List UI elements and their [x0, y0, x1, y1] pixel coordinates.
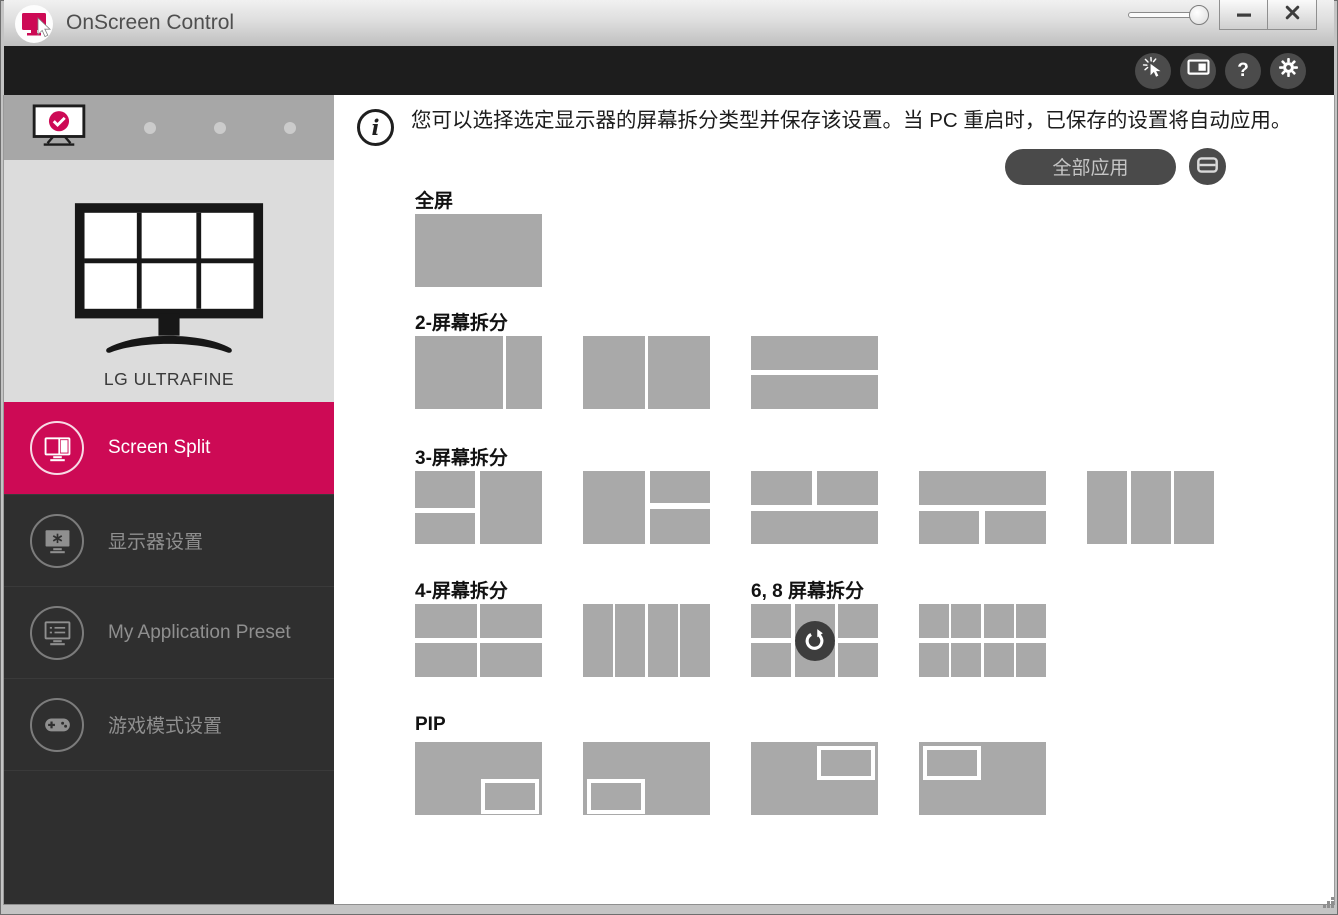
- monitor-dot[interactable]: [284, 122, 296, 134]
- monitor-dot[interactable]: [214, 122, 226, 134]
- split-cell: [415, 336, 503, 409]
- pip-window: [923, 746, 981, 780]
- pip-monitor-button[interactable]: [1180, 53, 1216, 89]
- split-cell: [1016, 604, 1046, 638]
- split-cell: [1131, 471, 1171, 544]
- transparency-slider[interactable]: [1128, 12, 1206, 18]
- game-mode-icon: [30, 698, 84, 752]
- split-section: 4-屏幕拆分: [415, 576, 710, 677]
- split-section: 全屏: [415, 186, 542, 287]
- split-cell: [615, 604, 645, 677]
- split-section: 3-屏幕拆分: [415, 443, 1214, 544]
- sidebar-item-label: Screen Split: [108, 437, 210, 459]
- split-layout-tile[interactable]: [919, 604, 1046, 677]
- pip-window: [587, 779, 645, 813]
- titlebar: OnScreen Control: [4, 0, 1334, 46]
- sidebar-footer: [4, 770, 334, 904]
- split-cell: [1087, 471, 1127, 544]
- split-layout-sections: 全屏2-屏幕拆分3-屏幕拆分4-屏幕拆分6, 8 屏幕拆分PIP: [334, 186, 1334, 815]
- app-logo-icon: [14, 4, 54, 44]
- split-layout-tile[interactable]: [751, 336, 878, 409]
- split-cell: [838, 604, 878, 638]
- pip-window: [481, 779, 539, 813]
- split-cell: [919, 643, 949, 677]
- slider-knob[interactable]: [1189, 5, 1209, 25]
- minimize-icon: [1236, 6, 1252, 24]
- split-cell: [480, 643, 542, 677]
- split-layout-tile[interactable]: [415, 214, 542, 287]
- split-cell: [415, 604, 477, 638]
- split-cell: [583, 604, 613, 677]
- split-cell: [751, 511, 878, 544]
- resize-grip[interactable]: [1322, 896, 1335, 914]
- sidebar-item-app-preset[interactable]: My Application Preset: [4, 586, 334, 678]
- split-layout-tile[interactable]: [919, 742, 1046, 815]
- split-cell: [415, 471, 475, 508]
- apply-all-button[interactable]: 全部应用: [1005, 149, 1176, 185]
- click-pointer-button[interactable]: [1135, 53, 1171, 89]
- close-icon: [1284, 4, 1301, 26]
- split-cell: [480, 604, 542, 638]
- section-label: 3-屏幕拆分: [415, 443, 1214, 467]
- display-icon: [1197, 157, 1218, 176]
- monitor-check-icon[interactable]: [32, 104, 86, 152]
- split-layout-tile[interactable]: [583, 742, 710, 815]
- split-cell: [984, 604, 1014, 638]
- split-cell: [1174, 471, 1214, 544]
- section-label: 4-屏幕拆分: [415, 576, 710, 600]
- split-layout-tile[interactable]: [415, 471, 542, 544]
- split-layout-tile[interactable]: [415, 336, 542, 409]
- section-label: 2-屏幕拆分: [415, 308, 878, 332]
- sidebar-item-game-mode[interactable]: 游戏模式设置: [4, 678, 334, 770]
- settings-button[interactable]: [1270, 53, 1306, 89]
- sidebar-item-label: 显示器设置: [108, 527, 203, 554]
- split-cell: [506, 336, 542, 409]
- split-cell: [480, 471, 542, 544]
- split-layout-tile[interactable]: [583, 471, 710, 544]
- split-layout-tile[interactable]: [583, 336, 710, 409]
- help-button[interactable]: ?: [1225, 53, 1261, 89]
- split-cell: [838, 643, 878, 677]
- help-icon: ?: [1237, 60, 1249, 82]
- section-label: PIP: [415, 714, 1046, 738]
- pip-monitor-icon: [1187, 58, 1210, 83]
- split-layout-tile[interactable]: [415, 742, 542, 815]
- split-cell: [583, 471, 645, 544]
- split-cell: [919, 471, 1046, 505]
- split-layout-tile[interactable]: [751, 471, 878, 544]
- split-cell: [650, 509, 710, 544]
- split-cell: [650, 471, 710, 503]
- split-cell: [680, 604, 710, 677]
- split-layout-tile[interactable]: [583, 604, 710, 677]
- sidebar-item-label: 游戏模式设置: [108, 711, 222, 738]
- split-layout-tile[interactable]: [751, 604, 878, 677]
- split-cell: [751, 471, 812, 505]
- section-label: 6, 8 屏幕拆分: [751, 576, 1046, 600]
- split-cell: [984, 643, 1014, 677]
- split-cell: [951, 643, 981, 677]
- split-layout-tile[interactable]: [919, 471, 1046, 544]
- split-cell: [951, 604, 981, 638]
- sidebar-item-monitor-settings[interactable]: 显示器设置: [4, 494, 334, 586]
- sidebar: LG ULTRAFINE Screen Split: [4, 95, 334, 904]
- split-cell: [985, 511, 1046, 544]
- monitor-preview: LG ULTRAFINE: [4, 160, 334, 402]
- sidebar-item-label: My Application Preset: [108, 622, 291, 644]
- split-cell: [583, 336, 645, 409]
- screen-split-icon: [30, 421, 84, 475]
- split-layout-tile[interactable]: [415, 604, 542, 677]
- settings-gear-icon: [1278, 57, 1299, 84]
- split-layout-tile[interactable]: [1087, 471, 1214, 544]
- info-icon: i: [357, 109, 394, 146]
- six-split-monitor-illustration: [73, 202, 265, 363]
- app-window: OnScreen Control: [0, 0, 1338, 915]
- split-cell: [415, 214, 542, 287]
- app-preset-icon: [30, 606, 84, 660]
- monitor-selector: [4, 95, 334, 160]
- sidebar-item-screen-split[interactable]: Screen Split: [4, 402, 334, 494]
- minimize-button[interactable]: [1219, 0, 1268, 30]
- info-text: 您可以选择选定显示器的屏幕拆分类型并保存该设置。当 PC 重启时，已保存的设置将…: [411, 107, 1304, 146]
- click-pointer-icon: [1141, 55, 1166, 86]
- split-section: 6, 8 屏幕拆分: [751, 576, 1046, 677]
- monitor-settings-icon: [30, 514, 84, 568]
- split-cell: [751, 375, 878, 409]
- split-cell: [648, 604, 678, 677]
- split-section: PIP: [415, 714, 1046, 815]
- split-cell: [751, 604, 791, 638]
- toolbar: ?: [4, 46, 1334, 95]
- split-layout-tile[interactable]: [751, 742, 878, 815]
- split-cell: [751, 336, 878, 370]
- monitor-name: LG ULTRAFINE: [104, 369, 234, 390]
- split-cell: [919, 604, 949, 638]
- section-label: 全屏: [415, 186, 542, 210]
- main-content: i 您可以选择选定显示器的屏幕拆分类型并保存该设置。当 PC 重启时，已保存的设…: [334, 95, 1334, 904]
- rotate-icon[interactable]: [795, 621, 835, 661]
- display-button[interactable]: [1189, 148, 1226, 185]
- split-cell: [415, 643, 477, 677]
- split-section: 2-屏幕拆分: [415, 308, 878, 409]
- split-cell: [919, 511, 979, 544]
- split-cell: [648, 336, 710, 409]
- split-cell: [751, 643, 791, 677]
- split-cell: [415, 513, 475, 544]
- window-title: OnScreen Control: [66, 11, 234, 35]
- monitor-dot[interactable]: [144, 122, 156, 134]
- close-button[interactable]: [1268, 0, 1317, 30]
- split-cell: [1016, 643, 1046, 677]
- pip-window: [817, 746, 875, 780]
- split-cell: [817, 471, 878, 505]
